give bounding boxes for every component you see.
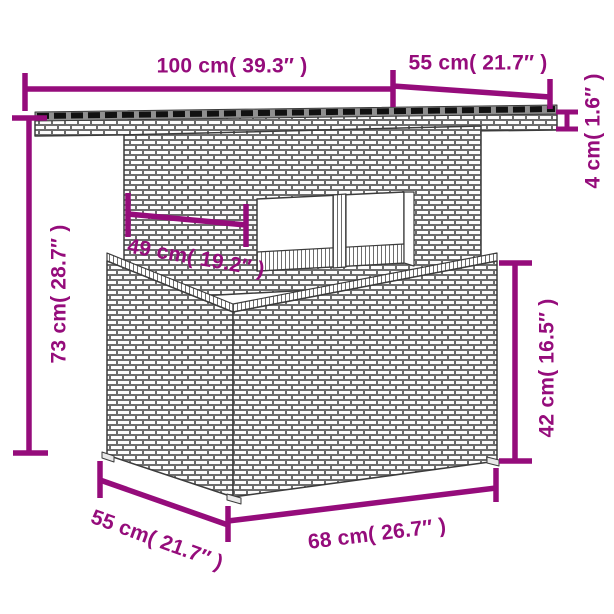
opening-divider-post xyxy=(333,194,346,268)
dimension-label-base-height: 42 cm( 16.5″ ) xyxy=(537,299,558,438)
dimension-label-tabletop-thickness: 4 cm( 1.6″ ) xyxy=(583,73,604,188)
dimension-label-total-height: 73 cm( 28.7″ ) xyxy=(49,225,70,364)
dimension-line-tabletop-depth xyxy=(393,79,550,109)
dimension-label-tabletop-width: 100 cm( 39.3″ ) xyxy=(157,56,308,77)
dimension-line-total-height xyxy=(12,118,48,455)
dimension-diagram: 100 cm( 39.3″ ) 55 cm( 21.7″ ) 4 cm( 1.6… xyxy=(0,0,614,614)
dimension-bracket-tabletop-thickness xyxy=(556,112,578,129)
dimension-label-tabletop-depth: 55 cm( 21.7″ ) xyxy=(409,53,548,74)
opening-side-post xyxy=(404,192,414,266)
table-drawing xyxy=(35,105,557,504)
dimension-line-base-height xyxy=(499,263,532,461)
